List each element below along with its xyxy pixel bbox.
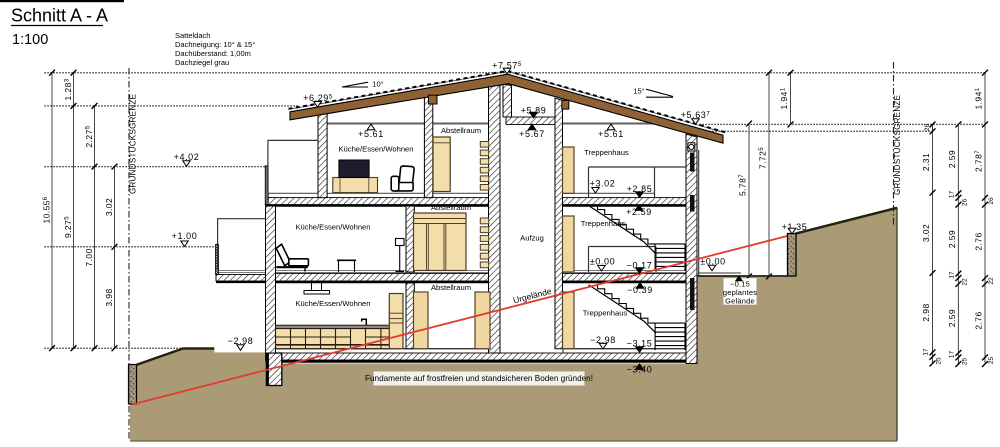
svg-text:2.76: 2.76 bbox=[974, 311, 984, 329]
svg-text:Dachneigung: 10° & 15°: Dachneigung: 10° & 15° bbox=[175, 40, 255, 49]
svg-text:Küche/Essen/Wohnen: Küche/Essen/Wohnen bbox=[338, 145, 413, 154]
svg-text:Abstellraum: Abstellraum bbox=[431, 203, 471, 212]
svg-text:25: 25 bbox=[936, 357, 943, 365]
svg-text:2.76: 2.76 bbox=[974, 232, 984, 250]
svg-text:Treppenhaus: Treppenhaus bbox=[584, 148, 629, 157]
svg-text:15°: 15° bbox=[633, 87, 644, 96]
svg-text:22: 22 bbox=[961, 278, 968, 286]
svg-text:Aufzug: Aufzug bbox=[520, 234, 544, 243]
svg-text:GRUNDSTÜCKSGRENZE: GRUNDSTÜCKSGRENZE bbox=[893, 95, 902, 195]
svg-text:26: 26 bbox=[961, 199, 968, 207]
svg-text:+1.00: +1.00 bbox=[172, 231, 198, 241]
svg-text:17: 17 bbox=[948, 271, 955, 279]
svg-text:25: 25 bbox=[961, 358, 968, 366]
svg-text:2.59: 2.59 bbox=[947, 309, 957, 327]
svg-text:Satteldach: Satteldach bbox=[175, 31, 210, 40]
svg-text:Schnitt A - A: Schnitt A - A bbox=[11, 6, 108, 26]
svg-text:Treppenhaus: Treppenhaus bbox=[581, 219, 626, 228]
svg-text:25: 25 bbox=[988, 357, 995, 365]
svg-text:2.98: 2.98 bbox=[921, 303, 931, 321]
svg-text:GRUNDSTÜCKSGRENZE: GRUNDSTÜCKSGRENZE bbox=[129, 94, 138, 194]
svg-text:17: 17 bbox=[923, 348, 930, 356]
svg-text:26: 26 bbox=[988, 197, 995, 205]
svg-text:17: 17 bbox=[948, 351, 955, 359]
svg-text:+5.61: +5.61 bbox=[598, 129, 624, 139]
svg-text:+5.67: +5.67 bbox=[519, 129, 545, 139]
svg-text:17: 17 bbox=[948, 191, 955, 199]
svg-text:+5.61: +5.61 bbox=[358, 129, 384, 139]
svg-text:3.02: 3.02 bbox=[104, 198, 114, 216]
svg-text:10°: 10° bbox=[372, 80, 383, 89]
svg-text:Küche/Essen/Wohnen: Küche/Essen/Wohnen bbox=[295, 299, 370, 308]
svg-text:Treppenhaus: Treppenhaus bbox=[583, 309, 628, 318]
svg-text:2.31: 2.31 bbox=[921, 153, 931, 171]
svg-text:Dachüberstand: 1,00m: Dachüberstand: 1,00m bbox=[175, 49, 251, 58]
svg-text:2.59: 2.59 bbox=[947, 230, 957, 248]
svg-text:26: 26 bbox=[924, 124, 931, 132]
svg-text:Abstellraum: Abstellraum bbox=[431, 283, 471, 292]
svg-text:3.98: 3.98 bbox=[104, 288, 114, 306]
svg-text:2.59: 2.59 bbox=[947, 150, 957, 168]
svg-text:Abstellraum: Abstellraum bbox=[441, 126, 481, 135]
svg-text:7.00: 7.00 bbox=[84, 248, 94, 266]
svg-text:22: 22 bbox=[988, 277, 995, 285]
svg-text:3.02: 3.02 bbox=[921, 224, 931, 242]
svg-text:Küche/Essen/Wohnen: Küche/Essen/Wohnen bbox=[295, 223, 370, 232]
svg-text:Fundamente auf frostfreien und: Fundamente auf frostfreien und standsich… bbox=[365, 374, 593, 383]
svg-text:10.556: 10.556 bbox=[42, 196, 52, 223]
svg-text:Gelände: Gelände bbox=[725, 297, 755, 306]
svg-text:1:100: 1:100 bbox=[12, 32, 48, 48]
svg-text:Dachziegel grau: Dachziegel grau bbox=[175, 58, 229, 67]
